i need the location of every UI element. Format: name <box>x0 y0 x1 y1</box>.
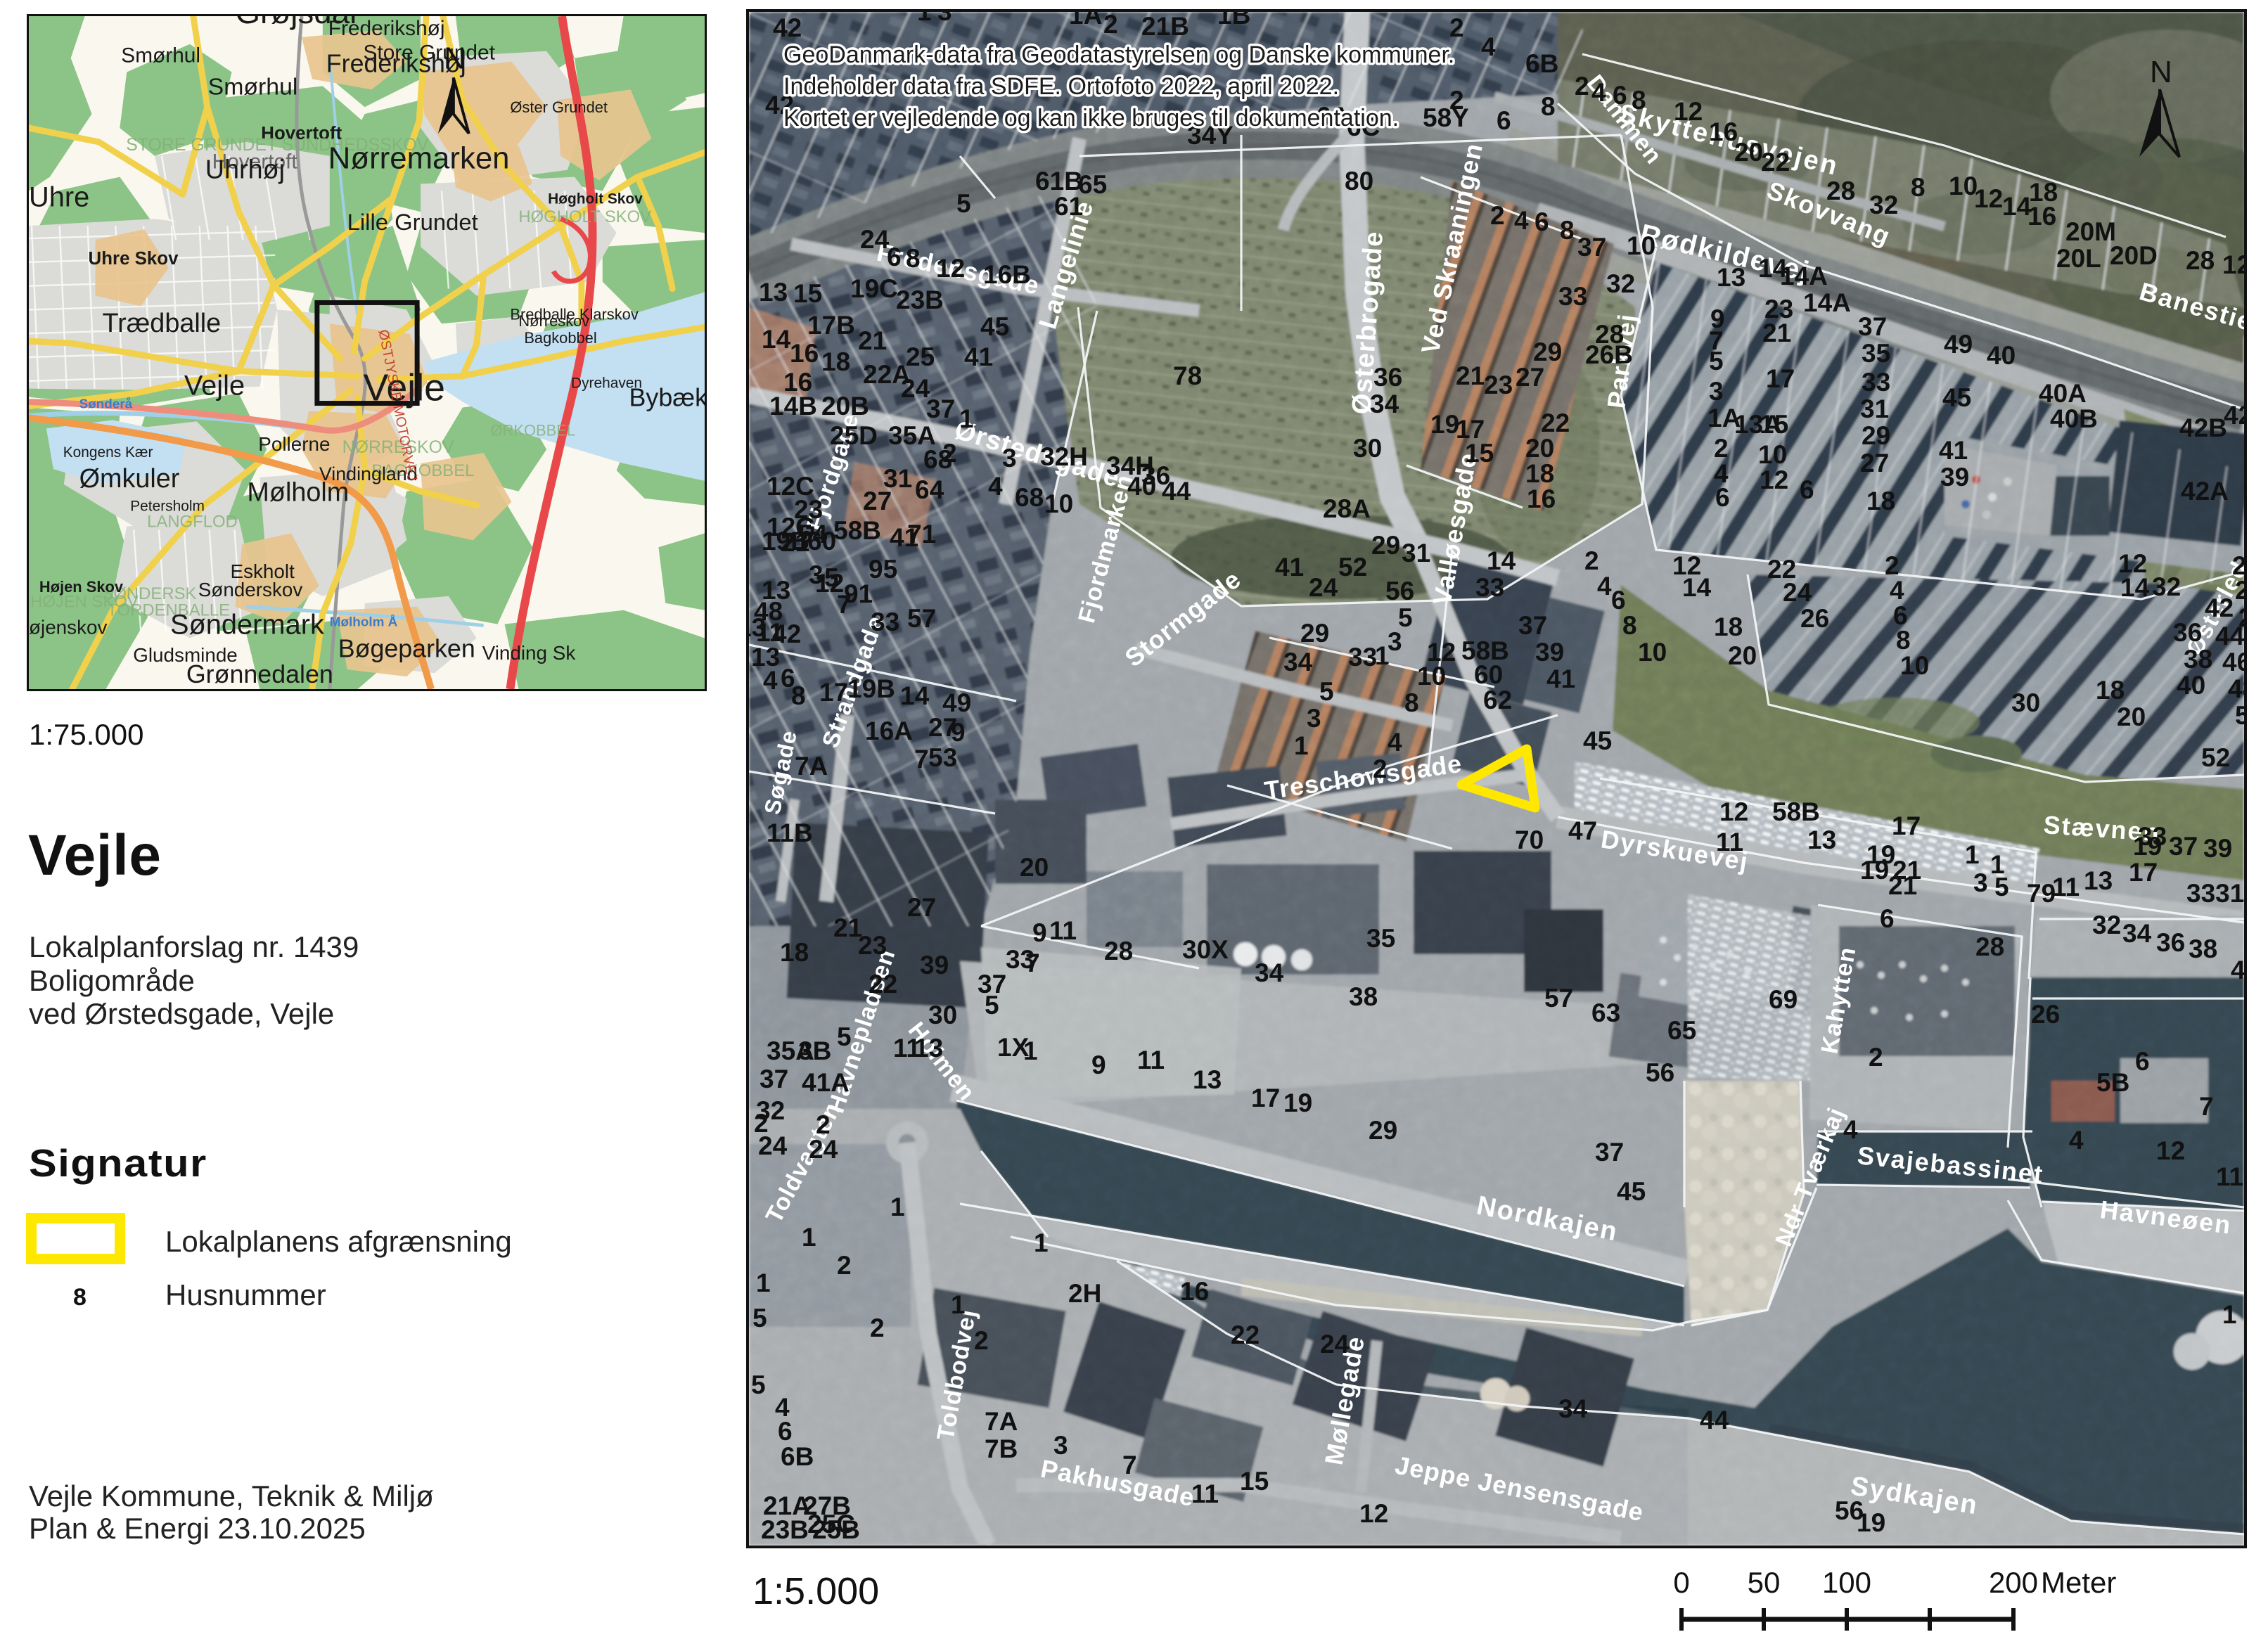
svg-text:69: 69 <box>1769 985 1798 1014</box>
svg-text:3: 3 <box>1709 377 1724 406</box>
svg-text:11: 11 <box>2052 873 2080 901</box>
svg-text:30: 30 <box>1353 434 1382 463</box>
svg-text:25D: 25D <box>830 421 878 450</box>
svg-text:18: 18 <box>780 938 809 967</box>
svg-text:8: 8 <box>906 244 921 273</box>
svg-text:16: 16 <box>1527 484 1556 513</box>
svg-text:95: 95 <box>869 555 897 584</box>
svg-text:15: 15 <box>1760 410 1788 439</box>
svg-text:45: 45 <box>1583 726 1612 755</box>
svg-text:17B: 17B <box>807 311 855 340</box>
svg-text:17: 17 <box>2129 858 2158 887</box>
svg-text:45: 45 <box>1617 1177 1646 1206</box>
svg-text:24: 24 <box>1320 1330 1350 1358</box>
svg-text:4: 4 <box>2069 1126 2084 1155</box>
svg-text:33: 33 <box>871 608 899 636</box>
svg-text:23B: 23B <box>896 285 944 314</box>
svg-text:48: 48 <box>2228 674 2244 703</box>
svg-text:50: 50 <box>2235 701 2244 730</box>
svg-text:35: 35 <box>1366 924 1395 953</box>
svg-text:13: 13 <box>1717 263 1745 292</box>
svg-text:12: 12 <box>1760 465 1788 494</box>
svg-text:41: 41 <box>1939 436 1968 465</box>
svg-text:1: 1 <box>756 1268 771 1297</box>
svg-text:9: 9 <box>1091 1051 1106 1079</box>
svg-text:200: 200 <box>1989 1566 2038 1599</box>
svg-text:16B: 16B <box>983 260 1031 289</box>
svg-text:3: 3 <box>1002 444 1017 473</box>
svg-text:Kortet er vejledende og kan ik: Kortet er vejledende og kan ikke bruges … <box>783 105 1399 131</box>
svg-text:Smørhul: Smørhul <box>121 44 200 68</box>
svg-text:1B: 1B <box>1217 12 1250 30</box>
svg-text:4: 4 <box>1591 78 1606 107</box>
svg-text:31: 31 <box>1402 539 1430 567</box>
svg-text:15: 15 <box>793 279 822 308</box>
svg-text:21: 21 <box>858 326 887 355</box>
svg-text:12: 12 <box>2222 250 2244 279</box>
svg-text:13: 13 <box>1193 1065 1222 1094</box>
svg-text:8: 8 <box>1622 611 1637 640</box>
svg-text:18: 18 <box>1525 459 1554 488</box>
svg-text:29: 29 <box>1369 1116 1397 1145</box>
svg-text:56: 56 <box>1835 1496 1864 1525</box>
svg-text:24: 24 <box>809 1135 838 1164</box>
svg-text:34: 34 <box>1255 958 1284 987</box>
svg-text:32: 32 <box>756 1096 785 1125</box>
svg-text:65: 65 <box>1667 1016 1696 1045</box>
svg-text:1: 1 <box>1990 850 2005 879</box>
svg-text:øjenskov: øjenskov <box>29 617 107 638</box>
svg-text:39: 39 <box>2203 834 2232 863</box>
svg-text:4: 4 <box>1388 728 1402 757</box>
svg-text:37: 37 <box>1577 233 1606 262</box>
svg-text:Store Grundet: Store Grundet <box>364 41 496 65</box>
svg-text:5: 5 <box>985 991 999 1020</box>
svg-text:29: 29 <box>1300 619 1329 648</box>
svg-text:3: 3 <box>1973 868 1988 897</box>
svg-text:57: 57 <box>1544 984 1573 1013</box>
svg-text:16: 16 <box>790 339 819 368</box>
svg-text:Bredballe Klarskov: Bredballe Klarskov <box>510 305 638 323</box>
svg-text:32: 32 <box>2152 572 2181 601</box>
svg-text:10: 10 <box>1638 638 1667 667</box>
svg-text:10: 10 <box>1044 489 1073 518</box>
svg-text:1: 1 <box>2222 1300 2237 1329</box>
svg-text:3: 3 <box>937 12 952 26</box>
svg-text:1: 1 <box>1375 641 1390 670</box>
svg-text:5: 5 <box>1319 677 1334 706</box>
svg-text:6: 6 <box>1880 904 1895 933</box>
svg-text:25B: 25B <box>812 1515 860 1544</box>
svg-text:3B: 3B <box>798 1036 831 1065</box>
svg-text:1A: 1A <box>1069 12 1102 30</box>
svg-text:19: 19 <box>1430 410 1459 439</box>
svg-text:60: 60 <box>1474 660 1503 689</box>
svg-text:16A: 16A <box>865 717 913 745</box>
svg-text:Søndermark: Søndermark <box>170 610 324 641</box>
svg-text:29: 29 <box>1533 338 1562 366</box>
svg-text:28: 28 <box>2186 246 2215 275</box>
svg-text:61B: 61B <box>1035 167 1083 195</box>
svg-text:LANGFLOD: LANGFLOD <box>147 512 238 531</box>
svg-text:GeoDanmark-data fra Geodatasty: GeoDanmark-data fra Geodatastyrelsen og … <box>783 41 1454 68</box>
svg-text:20M: 20M <box>2065 217 2116 246</box>
svg-text:37: 37 <box>1595 1138 1624 1167</box>
svg-text:Nørremarken: Nørremarken <box>328 141 510 176</box>
svg-text:47: 47 <box>1568 816 1597 845</box>
svg-text:27: 27 <box>1516 363 1544 392</box>
svg-text:N: N <box>444 41 466 76</box>
svg-text:36: 36 <box>1373 363 1402 392</box>
svg-text:9: 9 <box>1032 918 1047 947</box>
svg-text:26: 26 <box>1800 604 1829 633</box>
svg-text:Kongens Kær: Kongens Kær <box>63 444 153 461</box>
svg-text:26: 26 <box>2031 1000 2060 1029</box>
svg-text:30: 30 <box>928 1001 957 1029</box>
svg-text:68: 68 <box>1015 483 1044 512</box>
svg-text:10: 10 <box>1627 231 1655 260</box>
svg-text:1: 1 <box>951 1290 966 1319</box>
svg-text:6: 6 <box>887 243 902 271</box>
svg-text:33: 33 <box>1348 643 1377 672</box>
svg-text:64: 64 <box>915 475 944 504</box>
svg-text:4: 4 <box>1597 572 1612 600</box>
svg-text:20: 20 <box>2117 702 2146 731</box>
svg-text:7: 7 <box>837 590 852 619</box>
svg-text:22: 22 <box>1231 1321 1260 1349</box>
svg-text:79: 79 <box>2027 879 2056 908</box>
svg-text:3: 3 <box>809 560 824 589</box>
svg-text:24: 24 <box>860 225 890 254</box>
svg-text:17: 17 <box>1892 811 1921 840</box>
svg-text:21: 21 <box>1762 319 1791 347</box>
svg-text:0: 0 <box>1673 1566 1689 1599</box>
svg-text:28: 28 <box>1975 932 2004 961</box>
svg-text:28A: 28A <box>1323 494 1371 523</box>
svg-text:1: 1 <box>917 12 932 26</box>
svg-text:Smørhul: Smørhul <box>208 73 298 100</box>
svg-text:21: 21 <box>1456 361 1485 390</box>
svg-text:1: 1 <box>802 1223 816 1252</box>
svg-text:14: 14 <box>1487 546 1516 575</box>
svg-text:Bybæk: Bybæk <box>629 384 705 412</box>
svg-text:21B: 21B <box>1141 12 1189 41</box>
svg-text:44: 44 <box>1162 477 1191 506</box>
svg-text:58B: 58B <box>833 516 881 545</box>
svg-text:6: 6 <box>1715 483 1730 512</box>
svg-text:6: 6 <box>2135 1047 2150 1076</box>
svg-text:4: 4 <box>1514 206 1529 235</box>
svg-text:Bøgeparken: Bøgeparken <box>338 634 475 662</box>
svg-text:32H: 32H <box>1040 442 1088 471</box>
svg-text:34: 34 <box>2122 919 2152 948</box>
svg-text:58B: 58B <box>1772 797 1820 826</box>
svg-text:56: 56 <box>1646 1058 1674 1087</box>
svg-text:6: 6 <box>1535 207 1549 236</box>
svg-text:5: 5 <box>751 1370 766 1399</box>
svg-text:1: 1 <box>1034 1228 1049 1257</box>
svg-text:34: 34 <box>1370 390 1399 418</box>
svg-text:1: 1 <box>1023 1036 1038 1065</box>
svg-text:2: 2 <box>1575 72 1589 101</box>
svg-text:8: 8 <box>1911 173 1926 202</box>
svg-text:19: 19 <box>1860 856 1889 885</box>
svg-text:18: 18 <box>2096 676 2125 705</box>
svg-text:5: 5 <box>1709 347 1724 375</box>
svg-text:49: 49 <box>1944 330 1973 359</box>
svg-text:7: 7 <box>2199 1092 2214 1121</box>
svg-text:21: 21 <box>1888 871 1917 900</box>
svg-text:28: 28 <box>1826 176 1855 205</box>
svg-text:7: 7 <box>914 745 929 773</box>
svg-text:30X: 30X <box>1182 935 1229 964</box>
svg-text:8: 8 <box>1896 626 1911 655</box>
svg-text:63: 63 <box>1591 998 1620 1027</box>
svg-text:24: 24 <box>1309 573 1338 602</box>
svg-text:11: 11 <box>1191 1479 1219 1508</box>
svg-text:27: 27 <box>907 893 936 922</box>
svg-text:57: 57 <box>907 604 936 633</box>
svg-text:31: 31 <box>1860 394 1889 423</box>
svg-text:11B: 11B <box>767 818 813 847</box>
svg-text:20L: 20L <box>2056 244 2101 273</box>
svg-text:45: 45 <box>1942 383 1971 412</box>
svg-text:2: 2 <box>1103 12 1118 39</box>
svg-text:62: 62 <box>1483 686 1512 714</box>
svg-text:34: 34 <box>1283 648 1313 676</box>
svg-text:4: 4 <box>1481 32 1496 61</box>
svg-text:3: 3 <box>1053 1431 1068 1460</box>
svg-text:13: 13 <box>914 1034 943 1062</box>
svg-text:17: 17 <box>819 678 848 707</box>
svg-text:2H: 2H <box>1068 1279 1101 1308</box>
svg-text:52: 52 <box>2201 743 2230 772</box>
svg-text:33: 33 <box>1862 368 1890 397</box>
svg-text:38: 38 <box>1349 982 1378 1011</box>
svg-text:7A: 7A <box>985 1407 1018 1436</box>
svg-text:2: 2 <box>870 1313 885 1342</box>
svg-text:40: 40 <box>1987 341 2016 370</box>
svg-text:7: 7 <box>1025 949 1040 977</box>
svg-text:22: 22 <box>1541 409 1570 437</box>
svg-text:8: 8 <box>1632 86 1646 115</box>
svg-text:20: 20 <box>1734 138 1763 167</box>
svg-text:38: 38 <box>2189 934 2217 963</box>
svg-text:34: 34 <box>1558 1394 1588 1423</box>
svg-text:14: 14 <box>1682 573 1712 602</box>
svg-text:1: 1 <box>1965 840 1980 869</box>
svg-text:19C: 19C <box>850 274 898 303</box>
svg-text:10: 10 <box>1417 662 1446 690</box>
svg-text:7: 7 <box>1122 1451 1137 1479</box>
svg-text:Vinding Sk: Vinding Sk <box>482 642 576 664</box>
svg-text:40: 40 <box>2231 956 2244 984</box>
svg-text:23B: 23B <box>761 1515 809 1544</box>
svg-text:Frederikshøj: Frederikshøj <box>328 17 445 40</box>
svg-text:44: 44 <box>1700 1406 1729 1434</box>
svg-text:4: 4 <box>1843 1115 1858 1144</box>
svg-text:35: 35 <box>1862 339 1890 368</box>
svg-text:58Y: 58Y <box>1423 103 1469 132</box>
svg-text:Trædballe: Trædballe <box>102 309 221 338</box>
svg-text:Sønderskov: Sønderskov <box>198 579 303 600</box>
svg-text:42A: 42A <box>2181 477 2229 506</box>
svg-text:12: 12 <box>936 254 965 283</box>
svg-text:15: 15 <box>1240 1467 1269 1496</box>
svg-text:39: 39 <box>920 951 949 979</box>
svg-text:80: 80 <box>1345 167 1373 195</box>
svg-text:100: 100 <box>1822 1566 1871 1599</box>
svg-text:20D: 20D <box>2110 241 2158 270</box>
svg-text:Uhre Skov: Uhre Skov <box>89 249 179 269</box>
svg-text:Uhre: Uhre <box>29 181 89 212</box>
svg-text:2: 2 <box>1869 1043 1883 1072</box>
svg-text:2: 2 <box>1449 13 1464 42</box>
svg-text:23: 23 <box>858 931 887 960</box>
svg-text:5B: 5B <box>2096 1068 2129 1097</box>
svg-text:17: 17 <box>1251 1084 1280 1112</box>
svg-text:14B: 14B <box>769 392 817 420</box>
svg-text:10: 10 <box>1900 651 1929 680</box>
svg-text:32: 32 <box>2092 911 2121 939</box>
svg-text:37: 37 <box>1518 611 1547 640</box>
svg-text:42: 42 <box>2205 593 2234 622</box>
svg-text:Mølholm Å: Mølholm Å <box>330 615 398 630</box>
svg-text:41: 41 <box>1275 553 1304 582</box>
svg-text:61: 61 <box>1054 192 1083 221</box>
svg-text:12: 12 <box>1719 797 1748 826</box>
svg-text:18: 18 <box>1714 612 1743 641</box>
svg-text:18: 18 <box>1866 487 1895 515</box>
svg-text:13: 13 <box>1807 825 1836 854</box>
svg-text:HØJEN SKOV: HØJEN SKOV <box>30 593 139 612</box>
svg-text:ØRKOBBEL: ØRKOBBEL <box>491 421 575 439</box>
svg-text:14: 14 <box>900 681 930 710</box>
svg-text:41: 41 <box>1546 664 1575 693</box>
svg-text:Uhrhøj: Uhrhøj <box>205 155 285 185</box>
svg-text:20: 20 <box>1020 853 1049 882</box>
svg-text:19: 19 <box>1283 1088 1312 1117</box>
svg-text:14A: 14A <box>1780 262 1828 290</box>
svg-text:10: 10 <box>1949 172 1978 200</box>
svg-text:46: 46 <box>2222 648 2244 676</box>
svg-text:40: 40 <box>2177 671 2205 700</box>
svg-text:42: 42 <box>773 13 802 42</box>
svg-text:12: 12 <box>2156 1136 2185 1165</box>
svg-text:41A: 41A <box>802 1068 850 1097</box>
svg-text:5: 5 <box>956 189 971 218</box>
svg-text:40B: 40B <box>2050 404 2098 433</box>
svg-text:9: 9 <box>951 718 966 747</box>
svg-text:Sønderå: Sønderå <box>79 397 133 412</box>
svg-text:Ømkuler: Ømkuler <box>79 464 180 494</box>
svg-text:6: 6 <box>1800 475 1814 504</box>
svg-text:1: 1 <box>1294 731 1309 760</box>
svg-text:37: 37 <box>1858 312 1887 341</box>
svg-text:8: 8 <box>791 681 806 710</box>
svg-text:2: 2 <box>837 1251 852 1280</box>
svg-text:7A: 7A <box>795 752 828 780</box>
svg-text:16: 16 <box>2027 202 2056 231</box>
svg-text:3: 3 <box>1307 704 1321 733</box>
svg-text:Meter: Meter <box>2041 1566 2116 1599</box>
svg-text:6: 6 <box>1613 81 1627 110</box>
svg-text:17: 17 <box>1766 364 1795 393</box>
svg-text:5: 5 <box>824 563 839 592</box>
svg-text:20: 20 <box>1728 641 1757 670</box>
svg-text:24: 24 <box>1783 578 1812 607</box>
svg-text:53: 53 <box>928 743 957 772</box>
svg-text:28: 28 <box>1104 937 1133 965</box>
svg-text:6: 6 <box>1611 586 1626 615</box>
svg-text:36: 36 <box>2173 618 2202 647</box>
svg-text:16: 16 <box>1180 1277 1209 1306</box>
svg-text:37: 37 <box>760 1065 788 1093</box>
svg-text:14A: 14A <box>1803 288 1851 317</box>
svg-text:39: 39 <box>1940 463 1969 492</box>
svg-text:Pollerne: Pollerne <box>258 433 330 455</box>
svg-text:8: 8 <box>1404 688 1419 717</box>
svg-text:18: 18 <box>821 347 850 376</box>
svg-text:Mølholm: Mølholm <box>247 478 349 508</box>
svg-text:32: 32 <box>1869 191 1898 219</box>
svg-text:29: 29 <box>1371 531 1400 560</box>
svg-text:4: 4 <box>988 472 1003 501</box>
svg-text:11: 11 <box>1049 916 1077 945</box>
svg-text:3331: 3331 <box>2186 879 2244 908</box>
svg-text:11: 11 <box>1137 1046 1165 1074</box>
svg-text:56: 56 <box>1385 577 1414 605</box>
svg-text:12: 12 <box>1974 184 2003 213</box>
svg-text:10: 10 <box>1758 440 1787 469</box>
svg-text:Høgholt Skov: Høgholt Skov <box>548 191 643 207</box>
svg-text:2: 2 <box>942 439 957 468</box>
svg-text:Øster Grundet: Øster Grundet <box>510 98 608 116</box>
svg-text:6: 6 <box>1497 106 1511 135</box>
svg-text:16: 16 <box>1709 117 1738 146</box>
svg-text:13: 13 <box>759 278 788 307</box>
svg-text:HØGHOLT SKOV: HØGHOLT SKOV <box>518 207 651 226</box>
svg-text:44: 44 <box>2215 622 2244 650</box>
svg-text:5: 5 <box>752 1304 767 1332</box>
svg-text:N: N <box>2150 55 2172 89</box>
svg-text:22: 22 <box>869 970 897 998</box>
svg-text:6B: 6B <box>1525 49 1558 78</box>
svg-text:14: 14 <box>762 325 791 354</box>
svg-text:22: 22 <box>1761 148 1790 176</box>
svg-text:26B: 26B <box>1585 340 1633 369</box>
svg-text:32: 32 <box>1606 269 1635 298</box>
svg-text:19B: 19B <box>847 674 895 703</box>
svg-text:7B: 7B <box>985 1434 1018 1463</box>
svg-text:50: 50 <box>1748 1566 1781 1599</box>
svg-text:1: 1 <box>959 404 974 433</box>
svg-text:Indeholder data fra SDFE. Orto: Indeholder data fra SDFE. Ortofoto 2022,… <box>783 73 1339 100</box>
svg-text:Lille Grundet: Lille Grundet <box>347 209 478 235</box>
svg-text:40A: 40A <box>2039 379 2087 408</box>
svg-text:6B: 6B <box>781 1442 814 1471</box>
svg-text:3: 3 <box>1388 627 1402 656</box>
svg-text:12: 12 <box>1674 97 1703 126</box>
svg-text:42B: 42B <box>2179 413 2227 442</box>
svg-text:30: 30 <box>2011 688 2040 717</box>
svg-text:15: 15 <box>1465 439 1494 468</box>
svg-text:20B: 20B <box>821 392 869 420</box>
svg-text:5: 5 <box>837 1022 852 1051</box>
svg-text:1: 1 <box>890 1193 905 1221</box>
svg-text:54: 54 <box>798 520 828 548</box>
svg-text:2: 2 <box>1584 546 1599 575</box>
